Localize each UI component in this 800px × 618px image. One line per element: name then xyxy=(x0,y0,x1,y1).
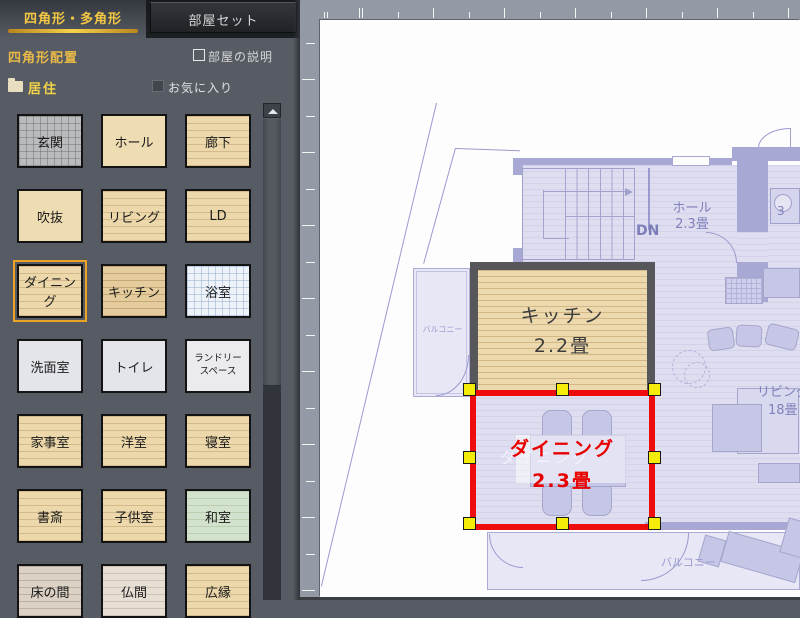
selection-handle-nw[interactable] xyxy=(463,383,476,396)
room-button-label: 和室 xyxy=(205,507,231,526)
plant-icon xyxy=(684,362,710,388)
room-button-label: 広縁 xyxy=(205,582,231,601)
selection-handle-s[interactable] xyxy=(556,517,569,530)
tool-sidebar: 四角形・多角形 部屋セット 四角形配置 部屋の説明 居住 お気に入り 玄関ホール… xyxy=(0,0,300,600)
site-boundary-line-2 xyxy=(423,148,456,264)
room-button-label: キッチン xyxy=(108,282,160,301)
tab-bar: 四角形・多角形 部屋セット xyxy=(0,0,300,38)
room-button-label: 洋室 xyxy=(121,432,147,451)
living-name-label: リビング xyxy=(757,381,800,400)
stair-treads xyxy=(565,169,635,259)
stair-line xyxy=(543,238,569,239)
room-button-13[interactable]: 洋室 xyxy=(101,414,167,468)
door-leaf xyxy=(790,128,791,148)
room-button-label: リビング xyxy=(108,207,160,226)
floorplan-paper[interactable]: バルコニー ホール 2.3畳 DN 3 xyxy=(320,20,800,597)
kitchen-size-label: 2.2畳 xyxy=(470,331,655,358)
room-button-label: 廊下 xyxy=(205,132,231,151)
balcony-bottom: バルコニー xyxy=(487,532,800,590)
room-button-label: 寝室 xyxy=(205,432,231,451)
room-button-label: 洗面室 xyxy=(30,357,69,376)
room-button-label: ランドリースペース xyxy=(187,353,249,379)
favorites-label: お気に入り xyxy=(168,79,233,96)
cabinet xyxy=(763,268,800,298)
balcony-bottom-label: バルコニー xyxy=(661,554,716,570)
room-button-label: 仏間 xyxy=(121,582,147,601)
room-description-checkbox[interactable] xyxy=(193,49,205,61)
wall-top-2 xyxy=(710,158,732,165)
room-button-1[interactable]: ホール xyxy=(101,114,167,168)
tab-shapes-label: 四角形・多角形 xyxy=(0,8,146,27)
room-button-18[interactable]: 床の間 xyxy=(17,564,83,618)
selection-handle-se[interactable] xyxy=(648,517,661,530)
selection-handle-ne[interactable] xyxy=(648,383,661,396)
room-button-label: ホール xyxy=(114,132,153,151)
room-button-label: 家事室 xyxy=(30,432,69,451)
dining-name-label: ダイニング xyxy=(470,434,655,461)
room-button-label: ダイニング xyxy=(19,272,81,310)
living-size-label: 18畳 xyxy=(768,399,798,418)
room-button-16[interactable]: 子供室 xyxy=(101,489,167,543)
wall-top xyxy=(513,158,672,165)
balcony-left: バルコニー xyxy=(413,268,470,397)
room-button-7[interactable]: キッチン xyxy=(101,264,167,318)
room-grid: 玄関ホール廊下吹抜リビングLDダイニングキッチン浴室洗面室トイレランドリースペー… xyxy=(17,114,253,618)
room-button-17[interactable]: 和室 xyxy=(185,489,251,543)
stair-line xyxy=(543,190,544,239)
stair-arrow-head xyxy=(625,188,633,196)
room-button-19[interactable]: 仏間 xyxy=(101,564,167,618)
room-button-label: LD xyxy=(209,209,226,224)
ruler-left-minor xyxy=(306,20,315,597)
drawing-canvas[interactable]: バルコニー ホール 2.3畳 DN 3 xyxy=(300,0,800,600)
tab-roomset[interactable]: 部屋セット xyxy=(150,2,297,33)
room-button-4[interactable]: リビング xyxy=(101,189,167,243)
living-sofa xyxy=(712,404,762,452)
room-button-9[interactable]: 洗面室 xyxy=(17,339,83,393)
room-button-label: トイレ xyxy=(114,357,153,376)
kitchen-name-label: キッチン xyxy=(470,301,655,328)
tab-roomset-label: 部屋セット xyxy=(151,10,296,29)
room-description-label: 部屋の説明 xyxy=(208,48,273,65)
wall-south xyxy=(645,522,800,530)
room-button-2[interactable]: 廊下 xyxy=(185,114,251,168)
room-button-3[interactable]: 吹抜 xyxy=(17,189,83,243)
balcony-left-label: バルコニー xyxy=(414,324,471,335)
section-title: 四角形配置 xyxy=(8,47,78,66)
selection-handle-e[interactable] xyxy=(648,451,661,464)
tab-shapes[interactable]: 四角形・多角形 xyxy=(0,0,146,38)
stairs-dn-label: DN xyxy=(636,223,666,239)
window xyxy=(672,156,710,166)
stair-arrow-line xyxy=(543,191,627,192)
sofa-cushion xyxy=(707,326,736,351)
room-button-10[interactable]: トイレ xyxy=(101,339,167,393)
room-button-14[interactable]: 寝室 xyxy=(185,414,251,468)
door-arc-entry xyxy=(758,128,790,148)
tv-board xyxy=(758,463,800,483)
room-button-11[interactable]: ランドリースペース xyxy=(185,339,251,393)
room-button-label: 床の間 xyxy=(30,582,69,601)
up-arrow-icon xyxy=(268,109,278,114)
room-button-label: 浴室 xyxy=(205,282,231,301)
room-button-5[interactable]: LD xyxy=(185,189,251,243)
scrollbar-up-button[interactable] xyxy=(263,103,281,118)
selection-handle-n[interactable] xyxy=(556,383,569,396)
kitchen-wall-top xyxy=(470,262,655,270)
stair-line xyxy=(565,216,635,217)
door-arc xyxy=(489,534,523,568)
selection-handle-w[interactable] xyxy=(463,451,476,464)
sofa-cushion xyxy=(735,324,762,347)
dining-size-label: 2.3畳 xyxy=(470,466,655,493)
room-button-8[interactable]: 浴室 xyxy=(185,264,251,318)
room-button-12[interactable]: 家事室 xyxy=(17,414,83,468)
ruler-top-minor xyxy=(300,12,800,18)
room-button-label: 書斎 xyxy=(37,507,63,526)
partial-room-size: 3 xyxy=(777,204,785,218)
room-button-label: 吹抜 xyxy=(37,207,63,226)
panel-edge-shadow xyxy=(293,0,300,600)
scrollbar-thumb[interactable] xyxy=(263,118,281,386)
selection-handle-sw[interactable] xyxy=(463,517,476,530)
site-boundary-line-3 xyxy=(456,148,520,151)
sidebar-scrollbar[interactable] xyxy=(263,103,281,600)
active-tab-underline xyxy=(8,29,138,33)
folder-icon xyxy=(8,81,23,92)
room-button-label: 子供室 xyxy=(114,507,153,526)
room-button-6[interactable]: ダイニング xyxy=(17,264,83,318)
kitchen-floor xyxy=(478,270,647,390)
room-button-20[interactable]: 広縁 xyxy=(185,564,251,618)
room-button-15[interactable]: 書斎 xyxy=(17,489,83,543)
category-label: 居住 xyxy=(28,78,58,97)
favorites-checkbox[interactable] xyxy=(152,80,164,92)
door-opening xyxy=(737,232,768,262)
mat-icon xyxy=(725,277,763,304)
room-button-label: 玄関 xyxy=(37,132,63,151)
room-button-0[interactable]: 玄関 xyxy=(17,114,83,168)
